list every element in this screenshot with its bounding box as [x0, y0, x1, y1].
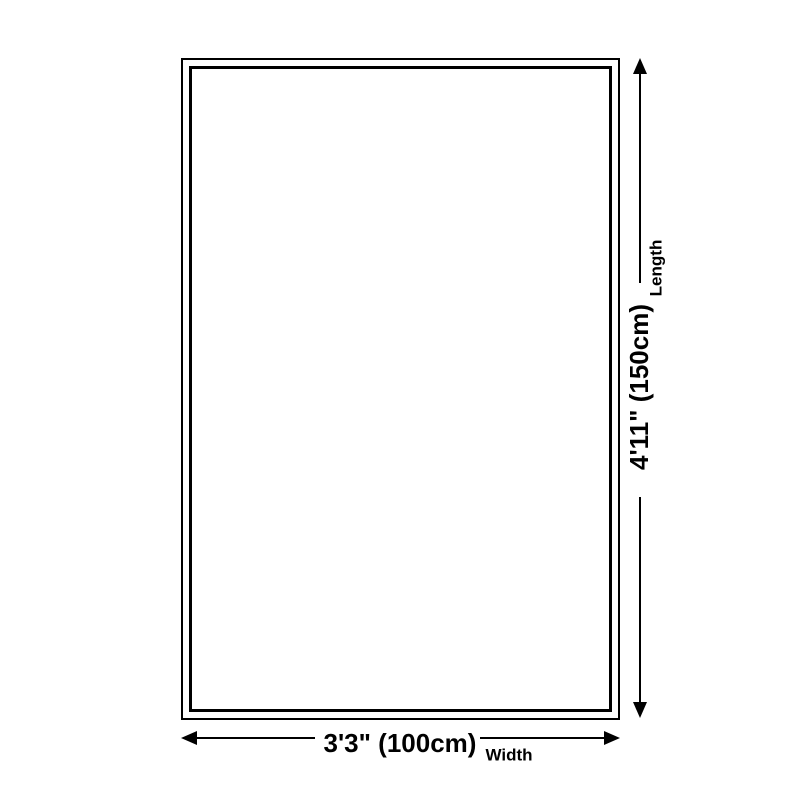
- width-arrow-left-icon: [181, 731, 197, 745]
- width-arrow-right-icon: [604, 731, 620, 745]
- length-dimension-line-lower: [639, 497, 641, 704]
- product-outline-outer-border: [181, 58, 620, 720]
- length-dimension-value: 4'11" (150cm): [626, 304, 652, 470]
- length-label: Length: [648, 240, 665, 297]
- product-outline-inner-border: [189, 66, 612, 712]
- width-dimension-line-right: [480, 737, 606, 739]
- length-arrow-down-icon: [633, 702, 647, 718]
- width-dimension-value: 3'3" (100cm): [324, 730, 477, 756]
- width-label: Width: [485, 747, 532, 764]
- length-dimension-line-upper: [639, 72, 641, 283]
- dimension-diagram: Length 4'11" (150cm) 3'3" (100cm) Width: [0, 0, 800, 800]
- width-dimension-line-left: [196, 737, 315, 739]
